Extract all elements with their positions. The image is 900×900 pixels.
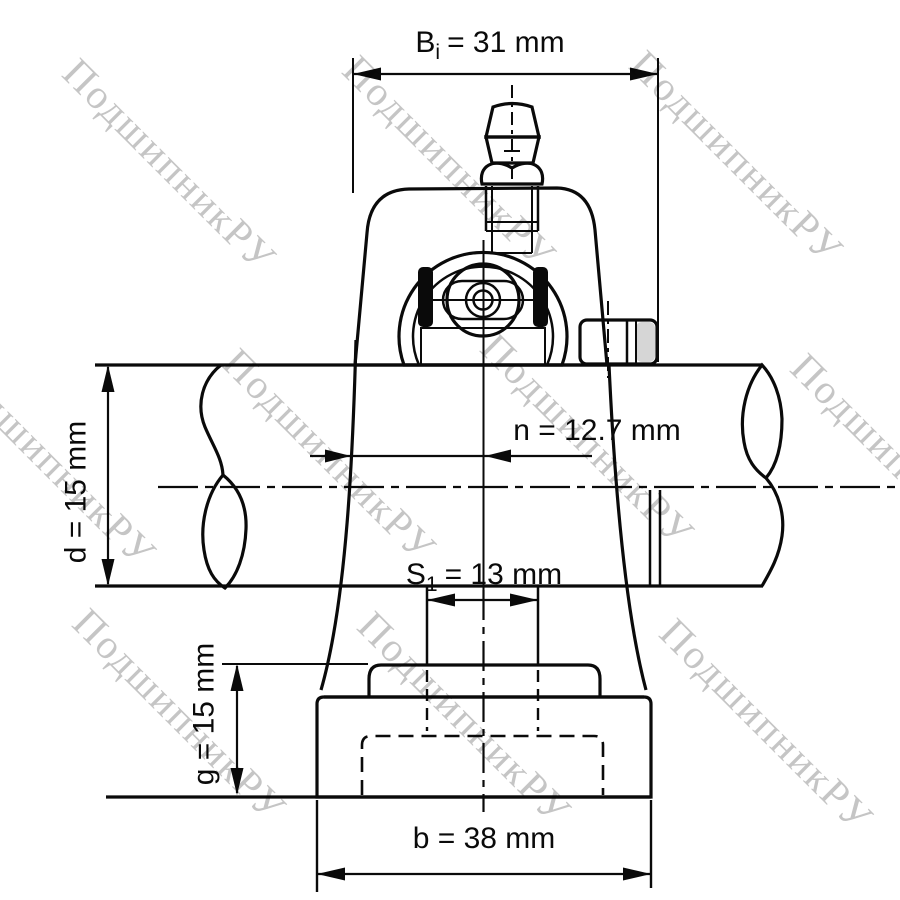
b-arrow-right [623,868,651,881]
dimension-b: b = 38 mm [317,800,651,892]
watermark: ПодшипникРУ [349,602,581,834]
shaft-break-left-lens [203,475,246,588]
watermark: ПодшипникРУ [54,49,286,281]
dimension-b-label: b = 38 mm [413,822,556,855]
watermark: ПодшипникРУ [782,344,900,576]
seal-left [418,267,433,327]
collar-gray-section [636,322,655,362]
n-arrow-right [485,450,511,463]
dimension-bi-label: Bi= 31 mm [415,26,564,64]
pedestal-left-edge [321,340,356,690]
watermark: ПодшипникРУ [621,41,853,273]
dimension-s1-label: S1= 13 mm [406,558,562,596]
shaft [95,365,783,588]
watermarks: ПодшипникРУ ПодшипникРУ ПодшипникРУ Подш… [0,41,900,841]
shaft-break-right-curve [762,478,783,586]
watermark: ПодшипникРУ [651,609,883,841]
d-arrow-bottom [102,559,115,586]
s1-arrow-right [510,594,538,607]
b-arrow-left [317,868,345,881]
bearing-unit-technical-drawing: Bi= 31 mm n = 12.7 mm d = 15 mm S1= 13 m… [0,0,900,900]
g-arrow-top [231,664,244,691]
d-arrow-top [102,365,115,392]
shaft-break-right-lens [742,365,782,478]
shaft-break-left-curve [201,365,223,475]
